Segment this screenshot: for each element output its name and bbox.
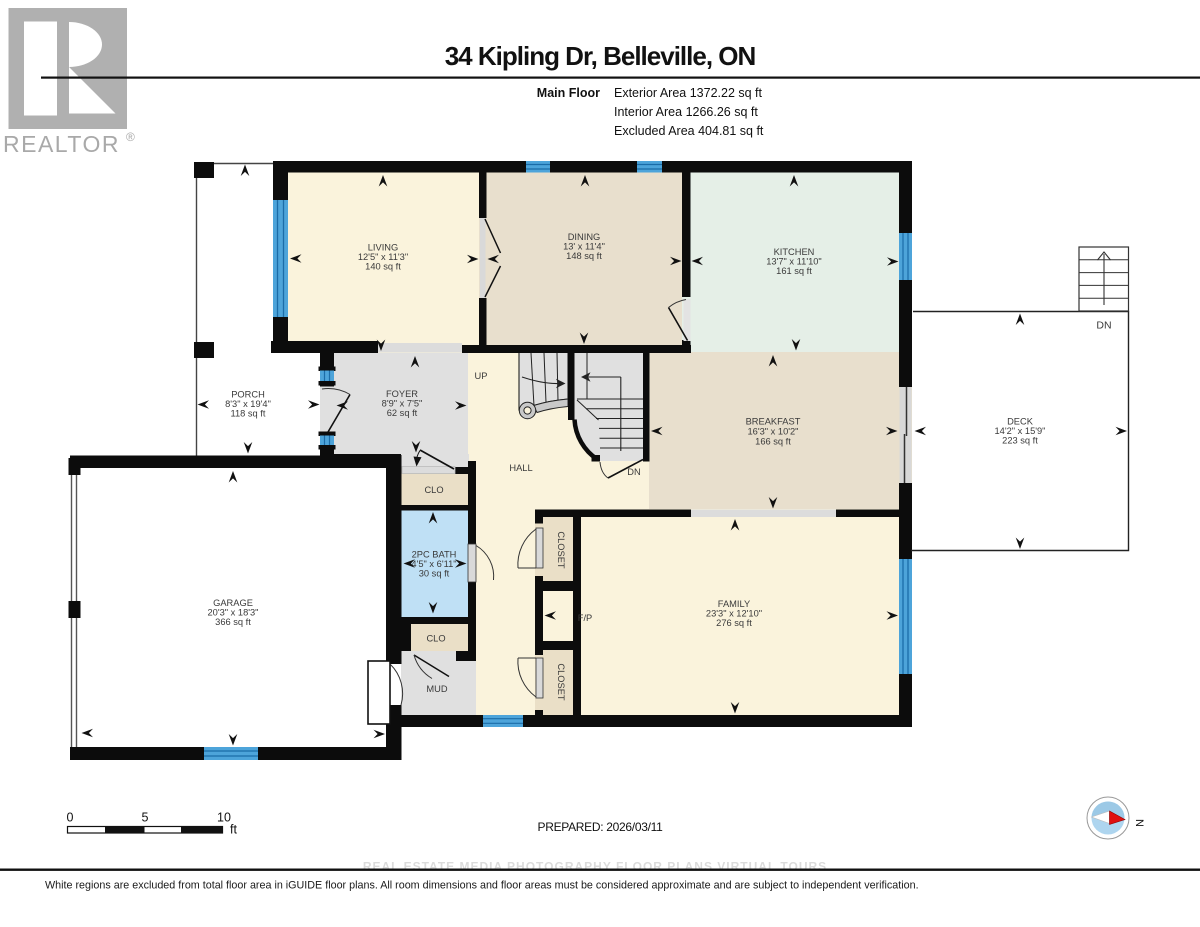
svg-text:0: 0 xyxy=(67,811,74,825)
svg-text:2PC BATH: 2PC BATH xyxy=(412,550,457,560)
svg-text:CLOSET: CLOSET xyxy=(556,531,566,569)
svg-text:DECK: DECK xyxy=(1007,417,1034,427)
svg-text:Excluded Area 404.81 sq ft: Excluded Area 404.81 sq ft xyxy=(614,124,764,138)
svg-text:CLO: CLO xyxy=(426,634,445,644)
svg-text:13' x 11'4": 13' x 11'4" xyxy=(563,242,605,252)
svg-text:REALTOR: REALTOR xyxy=(3,131,120,157)
svg-text:KITCHEN: KITCHEN xyxy=(774,247,815,257)
svg-text:GARAGE: GARAGE xyxy=(213,598,253,608)
svg-text:223 sq ft: 223 sq ft xyxy=(1002,436,1038,446)
svg-text:Main Floor: Main Floor xyxy=(537,86,600,100)
svg-text:8'9" x 7'5": 8'9" x 7'5" xyxy=(382,399,423,409)
svg-text:10: 10 xyxy=(217,811,231,825)
svg-text:FOYER: FOYER xyxy=(386,389,418,399)
svg-text:148 sq ft: 148 sq ft xyxy=(566,251,602,261)
svg-text:UP: UP xyxy=(475,371,488,381)
svg-text:PREPARED: 2026/03/11: PREPARED: 2026/03/11 xyxy=(538,820,664,834)
svg-text:CLO: CLO xyxy=(424,485,443,495)
svg-text:DN: DN xyxy=(1096,320,1111,332)
svg-text:REAL ESTATE MEDIA PHOTOGRAPHY: REAL ESTATE MEDIA PHOTOGRAPHY FLOOR PLAN… xyxy=(363,860,827,874)
svg-text:White regions are excluded fro: White regions are excluded from total fl… xyxy=(45,880,919,892)
svg-text:ft: ft xyxy=(230,823,237,837)
svg-text:FAMILY: FAMILY xyxy=(718,599,750,609)
svg-text:PORCH: PORCH xyxy=(231,390,265,400)
svg-text:23'3" x 12'10": 23'3" x 12'10" xyxy=(706,609,762,619)
svg-text:HALL: HALL xyxy=(509,463,532,473)
svg-text:DN: DN xyxy=(627,467,640,477)
svg-text:118 sq ft: 118 sq ft xyxy=(231,409,266,419)
svg-text:®: ® xyxy=(126,130,135,144)
svg-text:8'3" x 19'4": 8'3" x 19'4" xyxy=(225,399,271,409)
svg-text:14'2" x 15'9": 14'2" x 15'9" xyxy=(995,426,1046,436)
svg-text:166 sq ft: 166 sq ft xyxy=(755,437,791,447)
svg-text:16'3" x 10'2": 16'3" x 10'2" xyxy=(748,427,799,437)
svg-text:34 Kipling Dr, Belleville, ON: 34 Kipling Dr, Belleville, ON xyxy=(445,41,756,71)
svg-text:Exterior Area 1372.22 sq ft: Exterior Area 1372.22 sq ft xyxy=(614,86,763,100)
svg-text:F/P: F/P xyxy=(578,613,592,623)
svg-text:366 sq ft: 366 sq ft xyxy=(215,617,251,627)
svg-text:140 sq ft: 140 sq ft xyxy=(365,262,401,272)
svg-text:30 sq ft: 30 sq ft xyxy=(419,569,450,579)
svg-text:MUD: MUD xyxy=(426,684,447,694)
svg-text:DINING: DINING xyxy=(568,232,601,242)
svg-text:Interior Area 1266.26 sq ft: Interior Area 1266.26 sq ft xyxy=(614,105,758,119)
svg-text:4'5" x 6'11": 4'5" x 6'11" xyxy=(411,559,456,569)
svg-text:13'7" x 11'10": 13'7" x 11'10" xyxy=(766,257,821,267)
svg-text:CLOSET: CLOSET xyxy=(556,663,566,701)
svg-text:276 sq ft: 276 sq ft xyxy=(716,618,752,628)
svg-text:20'3" x 18'3": 20'3" x 18'3" xyxy=(208,608,259,618)
svg-text:5: 5 xyxy=(142,811,149,825)
svg-text:BREAKFAST: BREAKFAST xyxy=(746,417,801,427)
svg-text:LIVING: LIVING xyxy=(368,243,398,253)
svg-text:161 sq ft: 161 sq ft xyxy=(776,266,812,276)
svg-text:12'5" x 11'3": 12'5" x 11'3" xyxy=(358,252,408,262)
svg-text:N: N xyxy=(1133,819,1145,827)
svg-text:62 sq ft: 62 sq ft xyxy=(387,408,418,418)
